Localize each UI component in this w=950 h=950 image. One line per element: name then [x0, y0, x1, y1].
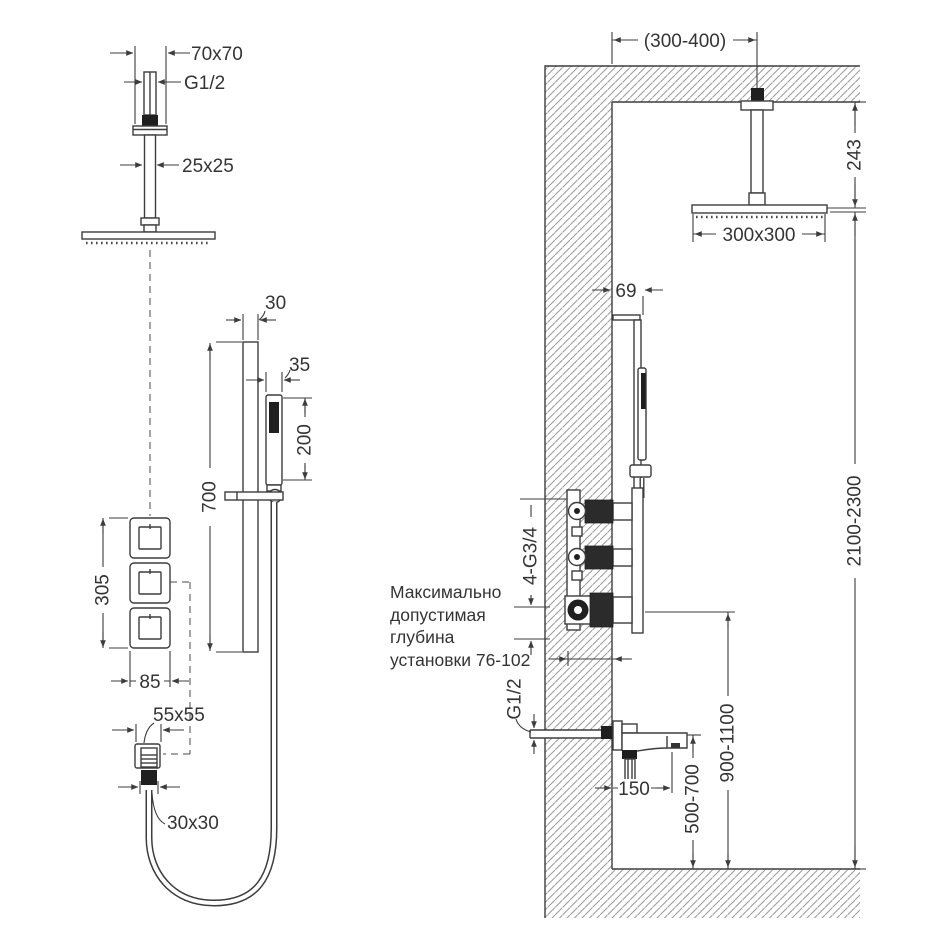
shower-head-plate [82, 232, 215, 239]
dim-outlet-escutcheon: 55x55 [153, 705, 205, 726]
spout-body [622, 733, 687, 752]
note-max-depth-1: Максимально [390, 582, 501, 602]
dim-bar-offset: 69 [615, 281, 636, 302]
note-max-depth-2: допустимая [390, 605, 486, 625]
note-max-depth-4: установки 76-102 [390, 650, 530, 670]
side-mixer [565, 488, 643, 633]
side-slide-bar [613, 315, 651, 498]
mixer-trim-plate [632, 488, 643, 633]
shower-arm [145, 135, 156, 218]
dim-hand-length: 200 [295, 424, 316, 456]
front-outlet-dims: 55x55 30x30 [112, 705, 219, 834]
cartridge-top [585, 500, 613, 523]
front-wall-outlet [135, 744, 160, 785]
front-ceiling-shower [82, 72, 215, 516]
floor-hatch [612, 869, 860, 918]
hand-shower-face [269, 402, 279, 433]
dim-bar-width: 30 [265, 293, 286, 314]
diagram-canvas: 70x70 G1/2 25x25 30 700 [0, 0, 950, 950]
spout-aerator [671, 743, 680, 748]
dim-head-arm: 25x25 [182, 156, 234, 177]
ceiling-hatch [612, 66, 860, 102]
slider-handle [225, 492, 283, 500]
dim-room-height: 2100-2300 [845, 476, 866, 567]
note-max-depth-3: глубина [390, 627, 455, 647]
spout-wall-fitting [601, 726, 613, 739]
dim-spout-length: 150 [618, 779, 650, 800]
dim-mixer-plate: 85 [139, 672, 160, 693]
side-ceiling-shower [692, 32, 827, 217]
slider-side [630, 465, 651, 477]
dim-mixer-height: 900-1100 [718, 704, 739, 783]
cartridge-bottom [590, 593, 613, 627]
dim-outlet-connector: 30x30 [167, 813, 219, 834]
dim-mixer-connections: 4-G3/4 [521, 527, 542, 586]
dim-hand-width: 35 [289, 355, 310, 376]
cartridge-middle [585, 546, 613, 569]
dim-head-offset: (300-400) [644, 31, 726, 52]
ceiling-connector [142, 115, 158, 126]
dim-head-size: 300x300 [723, 225, 796, 246]
outlet-connector [141, 770, 157, 785]
dim-head-escutcheon: 70x70 [191, 44, 243, 65]
dim-bar-length: 700 [200, 481, 221, 513]
ceiling-arm [751, 110, 763, 193]
dim-spout-height: 500-700 [683, 764, 704, 834]
shower-installation-diagram: 70x70 G1/2 25x25 30 700 [0, 0, 950, 950]
head-plate-side [692, 205, 827, 213]
dim-head-drop: 243 [845, 139, 866, 171]
dim-spout-thread: G1/2 [505, 678, 526, 719]
dim-head-thread: G1/2 [184, 73, 225, 94]
front-ceiling-shower-dims: 70x70 G1/2 25x25 [110, 44, 243, 177]
dim-mixer-span: 305 [93, 574, 114, 606]
